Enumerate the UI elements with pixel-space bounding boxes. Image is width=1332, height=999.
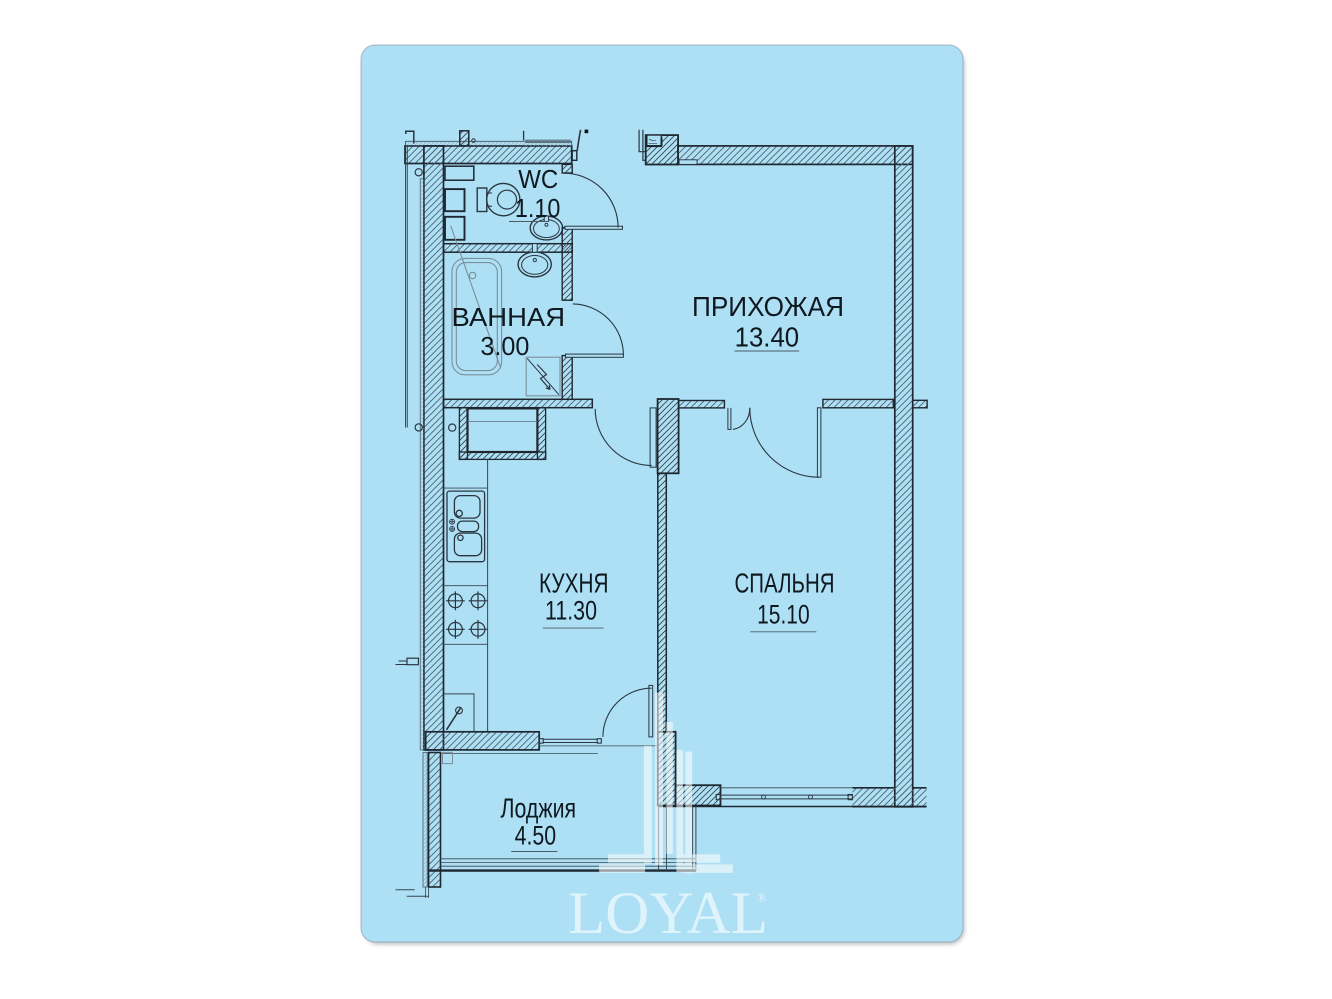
svg-text:15.10: 15.10 [757,599,810,629]
svg-text:LOYAL: LOYAL [568,880,768,946]
svg-text:®: ® [757,891,767,905]
svg-text:3.00: 3.00 [480,333,529,361]
svg-text:ВАННАЯ: ВАННАЯ [452,304,566,332]
svg-text:WC: WC [518,164,558,194]
svg-text:13.40: 13.40 [735,321,800,352]
svg-text:КУХНЯ: КУХНЯ [539,568,609,599]
svg-text:ПРИХОЖАЯ: ПРИХОЖАЯ [692,291,844,322]
svg-text:4.50: 4.50 [515,821,557,851]
svg-text:11.30: 11.30 [545,596,597,626]
svg-text:1.10: 1.10 [515,193,561,223]
svg-text:СПАЛЬНЯ: СПАЛЬНЯ [735,568,835,599]
svg-text:Лоджия: Лоджия [501,792,577,823]
